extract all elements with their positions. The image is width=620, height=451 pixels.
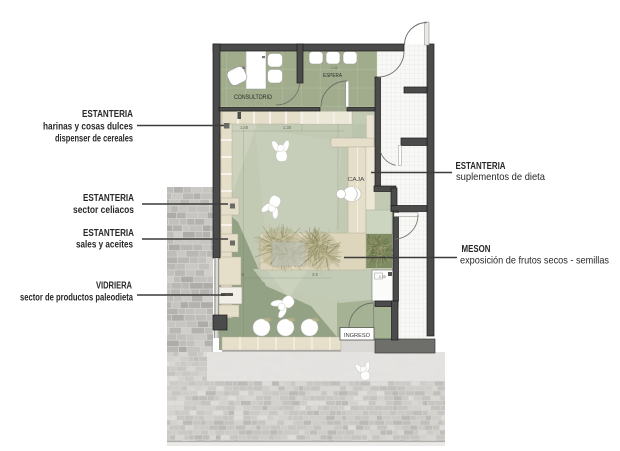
svg-text:ESTANTERIA: ESTANTERIA — [82, 109, 133, 120]
svg-text:3.8: 3.8 — [312, 272, 318, 277]
svg-text:sector celiacos: sector celiacos — [73, 205, 134, 216]
svg-text:CAJA: CAJA — [348, 177, 365, 183]
svg-text:0.38: 0.38 — [379, 275, 386, 279]
svg-text:CONSULTORIO: CONSULTORIO — [234, 95, 272, 101]
svg-text:sector de productos paleodieta: sector de productos paleodieta — [20, 293, 133, 304]
svg-text:dispenser de cereales: dispenser de cereales — [55, 134, 133, 145]
svg-text:sales y aceites: sales y aceites — [76, 240, 133, 251]
svg-text:VIDRIERA: VIDRIERA — [96, 281, 132, 292]
svg-text:ESTANTERIA: ESTANTERIA — [83, 193, 134, 204]
svg-text:1.20: 1.20 — [331, 66, 338, 70]
svg-text:exposición de frutos secos - s: exposición de frutos secos - semillas — [460, 255, 609, 267]
svg-text:harinas y cosas dulces: harinas y cosas dulces — [43, 122, 133, 133]
svg-text:1.30: 1.30 — [283, 125, 292, 130]
svg-text:ESTANTERIA: ESTANTERIA — [83, 228, 134, 239]
svg-text:ESPERA: ESPERA — [323, 73, 342, 79]
svg-text:MESON: MESON — [462, 243, 491, 255]
svg-text:1.40: 1.40 — [240, 125, 249, 130]
svg-text:INGRESO: INGRESO — [344, 333, 371, 339]
svg-text:suplementos de dieta: suplementos de dieta — [456, 171, 545, 183]
